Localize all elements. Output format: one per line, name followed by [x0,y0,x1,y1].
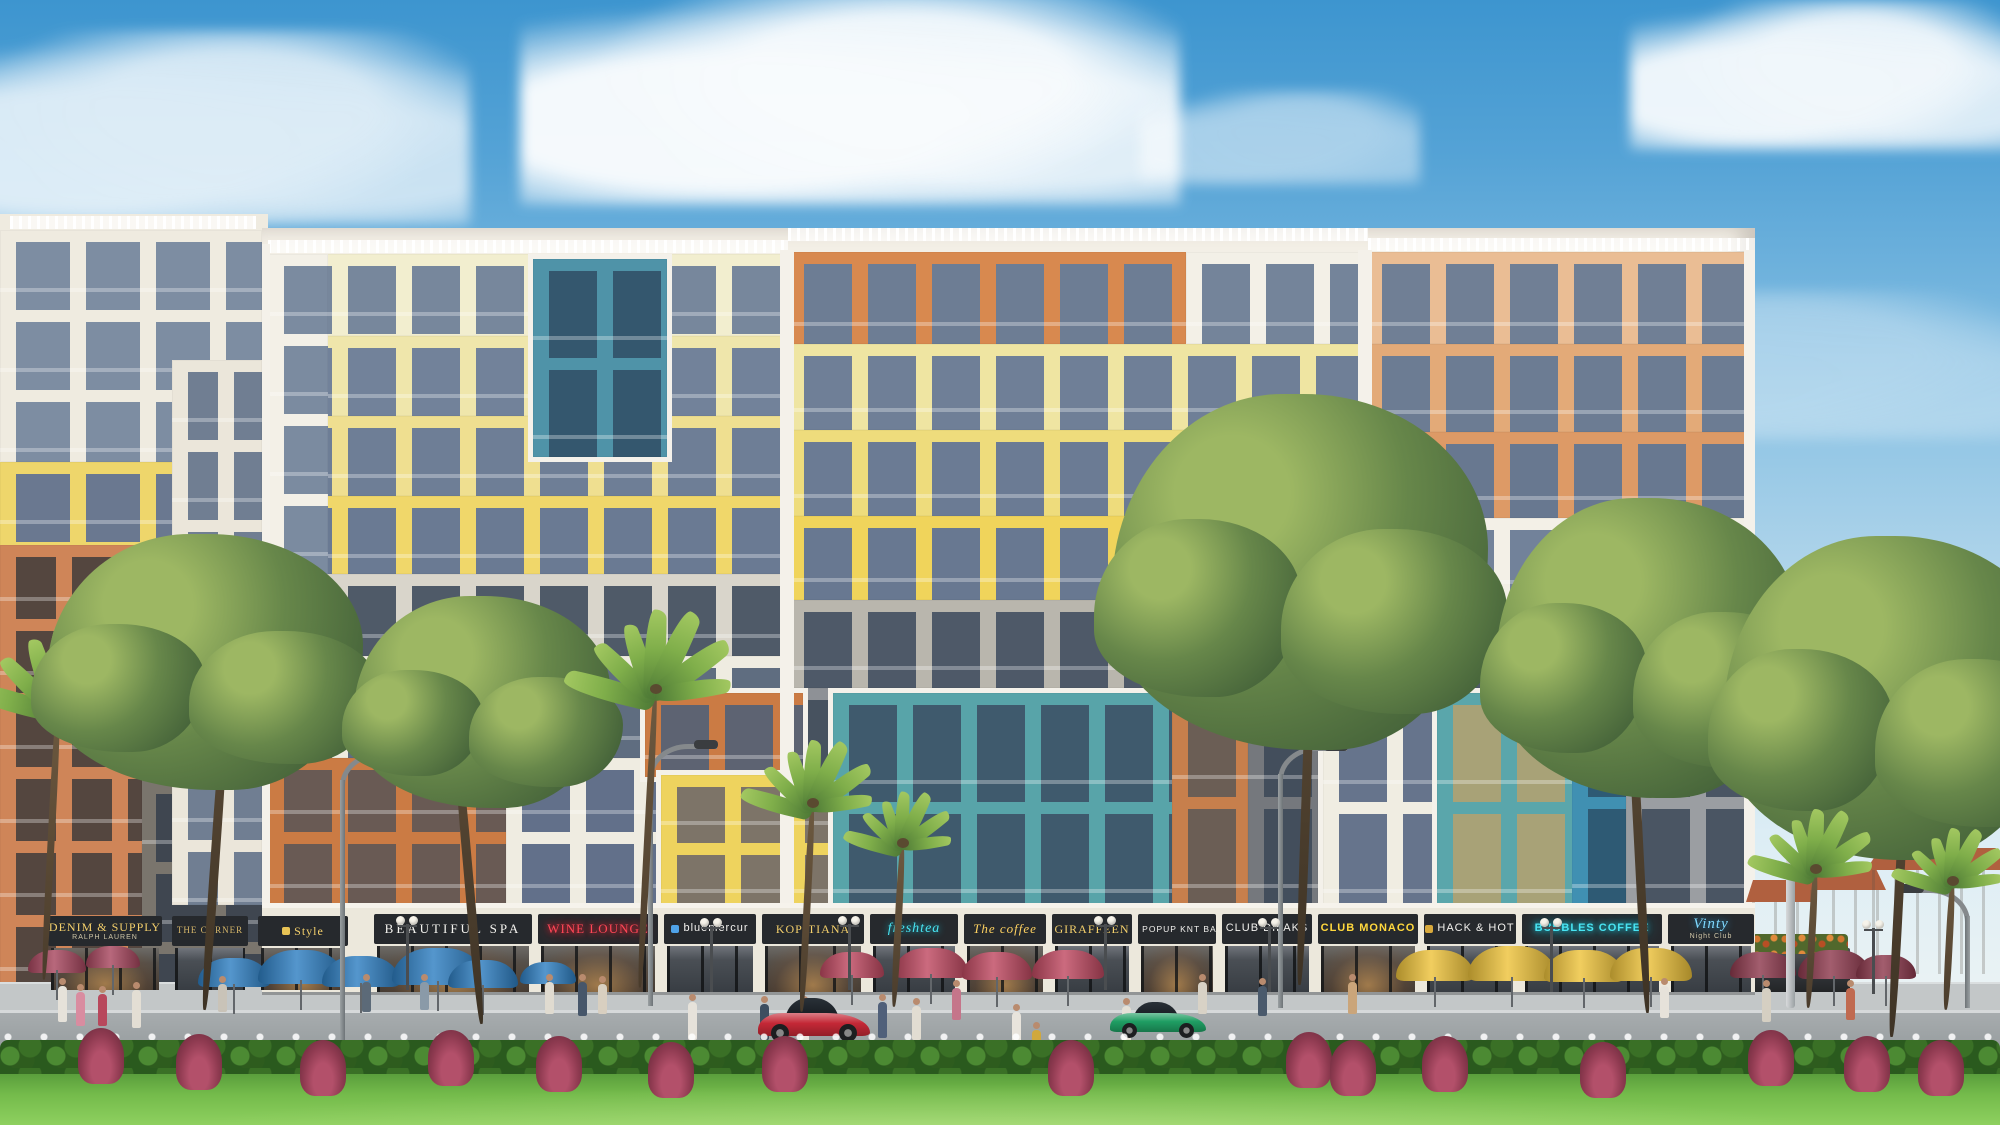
tree-canopy [1708,649,1893,811]
red-ti-plant [1048,1040,1094,1096]
shop-sign-board: freshtea [870,914,958,944]
globe-pole [848,924,851,990]
globe-light [1094,916,1103,925]
globe-pole [1872,928,1875,994]
pedestrian-body [98,994,107,1026]
shop-sign-label: Style [294,925,324,938]
globe-lamp-post [1540,918,1562,992]
shop-sign-label: Vinty [1693,917,1729,933]
red-ti-plant [428,1030,474,1086]
pedestrian-head [1763,980,1770,987]
shop-sign-label: GIRAFFEEN [1054,923,1129,936]
pedestrian-body [132,990,141,1028]
pedestrian-head [219,976,226,983]
lamp-head [694,740,718,749]
red-ti-plant [1748,1030,1794,1086]
cloud [1630,0,2000,150]
pedestrian [578,974,587,1016]
red-ti-plant [1580,1042,1626,1098]
pedestrian-head [363,974,370,981]
globe-crossbar [1096,925,1115,927]
cloud [520,0,1180,205]
globe-light [838,916,847,925]
pedestrian-body [1348,982,1357,1014]
roof-railing [788,228,1368,241]
shop-sign-label: HACK & HOT [1437,923,1514,935]
balcony-rails [268,496,788,574]
curved-street-lamp [1278,746,1350,1008]
pedestrian [1348,974,1357,1014]
lamp-arm [648,744,717,785]
pedestrian-head [953,980,960,987]
facade-block-yellow-f4 [268,496,788,574]
balcony-rails [1366,344,1755,432]
balcony-rails [788,252,1186,344]
globe-crossbar [840,925,859,927]
pedestrian [132,982,141,1028]
red-ti-plant [1286,1032,1332,1088]
facade-block-white-tr [1186,252,1366,344]
pedestrian-head [99,986,106,993]
globe-lamp-post [396,916,418,990]
globe-pole [1550,926,1553,992]
pedestrian-body [76,992,85,1026]
tree-canopy [1480,603,1647,753]
globe-light [851,916,860,925]
pedestrian [545,974,554,1014]
lamp-pole [1965,916,1970,1008]
globe-lamp-post [1094,916,1116,990]
cloud [1140,90,1420,185]
globe-lamp-post [838,916,860,990]
palm-crown [1947,876,1959,886]
shop-sign-board: Style [258,916,348,946]
curved-street-lamp [1898,888,1970,1008]
pedestrian-body [598,984,607,1014]
pedestrian-body [1762,988,1771,1022]
pedestrian-head [1847,980,1854,987]
balcony-rails [268,254,328,574]
pedestrian-head [1661,978,1668,985]
pedestrian-head [913,998,920,1005]
globe-light [1540,918,1549,927]
globe-light [1553,918,1562,927]
tree-canopy [1094,519,1301,697]
tree-canopy [342,670,483,776]
balcony-rails [1186,252,1366,344]
shop-sign-board: VintyNight Club [1668,914,1754,944]
globe-lamp-post [1862,920,1884,994]
red-ti-plant [648,1042,694,1098]
red-ti-plant [1422,1036,1468,1092]
facade-block-white-col [268,254,328,574]
pedestrian [952,980,961,1020]
pedestrian [1762,980,1771,1022]
pedestrian-head [133,982,140,989]
shop-sign-board: GIRAFFEEN [1052,914,1132,944]
shop-sign-board: The coffee [964,914,1046,944]
red-ti-plant [762,1036,808,1092]
pedestrian-head [1259,978,1266,985]
facade-block-orange-top [788,252,1186,344]
pedestrian-body [1258,986,1267,1016]
pedestrian-body [545,982,554,1014]
shop-sign-label: The coffee [973,922,1037,936]
globe-light [409,916,418,925]
facade-block-salmon-1 [1366,252,1755,344]
pedestrian-body [1846,988,1855,1020]
tree-canopy [31,624,205,752]
shop-logo-icon [282,927,290,935]
pedestrian [362,974,371,1012]
red-ti-plant [78,1028,124,1084]
tree-canopy [1281,529,1507,714]
pedestrian-head [546,974,553,981]
palm-crown [650,684,662,694]
red-ti-plant [1330,1040,1376,1096]
shop-sign-label: WINE LOUNGE [547,922,649,936]
lamp-arm [1901,888,1970,929]
pedestrian [420,974,429,1010]
pedestrian [218,976,227,1012]
shop-sign-label: POPUP KNT BAR [1142,925,1216,934]
shop-sign-board: POPUP KNT BAR [1138,914,1216,944]
pedestrian-body [578,982,587,1016]
globe-light [713,918,722,927]
pedestrian [598,976,607,1014]
pedestrian-body [1660,986,1669,1018]
pedestrian-body [952,988,961,1020]
lamp-arm [1278,746,1347,787]
pedestrian-body [58,986,67,1022]
roof-railing [268,240,788,253]
shop-sign-board: HACK & HOT [1424,914,1516,944]
palm-crown [807,798,819,808]
red-ti-plant [536,1036,582,1092]
pedestrian-body [362,982,371,1012]
pedestrian-head [1349,974,1356,981]
pedestrian-head [421,974,428,981]
globe-light [1258,918,1267,927]
globe-pole [710,926,713,992]
globe-light [1875,920,1884,929]
globe-crossbar [702,927,721,929]
pedestrian [76,984,85,1026]
globe-pole [1268,926,1271,992]
palm-crown [897,838,909,848]
pedestrian-head [879,994,886,1001]
globe-pole [406,924,409,990]
red-ti-plant [300,1040,346,1096]
globe-light [1862,920,1871,929]
globe-light [1271,918,1280,927]
shop-sign-board: DENIM & SUPPLYRALPH LAUREN [48,916,162,946]
globe-crossbar [1864,929,1883,931]
palm-crown [1810,864,1822,874]
pedestrian-head [689,994,696,1001]
pedestrian [58,978,67,1022]
balcony-rails [533,259,667,457]
globe-light [1107,916,1116,925]
pedestrian [1846,980,1855,1020]
roof-railing [1368,238,1755,251]
balcony-rails [1366,252,1755,344]
globe-light [396,916,405,925]
shop-sign-sublabel: RALPH LAUREN [72,934,138,941]
cloud [0,30,470,225]
globe-crossbar [1260,927,1279,929]
pedestrian-head [1199,974,1206,981]
pedestrian [1258,978,1267,1016]
red-ti-plant [1918,1040,1964,1096]
pedestrian-head [599,976,606,983]
pedestrian-head [59,978,66,985]
globe-light [700,918,709,927]
pedestrian-head [579,974,586,981]
pedestrian [1660,978,1669,1018]
pedestrian-head [77,984,84,991]
globe-crossbar [1542,927,1561,929]
facade-block-teal-block [528,254,672,462]
red-ti-plant [1844,1036,1890,1092]
roof-railing [10,216,256,229]
globe-crossbar [398,925,417,927]
globe-pole [1104,924,1107,990]
globe-lamp-post [700,918,722,992]
pedestrian [98,986,107,1026]
pedestrian-head [1013,1004,1020,1011]
shop-sign-label: DENIM & SUPPLY [49,921,161,934]
scene: BEAUTIFUL SPAWINE LOUNGEbluemercurKOPITI… [0,0,2000,1125]
facade-block-teal-str [828,688,1182,916]
shop-logo-icon [1425,925,1433,933]
red-ti-plant [176,1034,222,1090]
shop-sign-sublabel: Night Club [1690,933,1733,940]
facade-block-salmon-2 [1366,344,1755,432]
pedestrian-body [218,984,227,1012]
pedestrian-body [420,982,429,1010]
